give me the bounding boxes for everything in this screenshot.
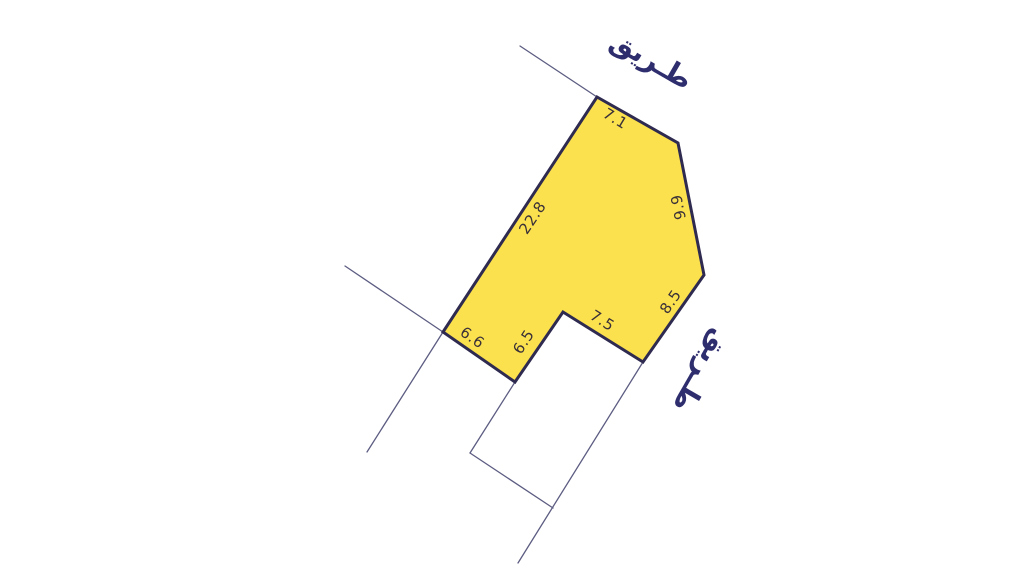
road-label-top: طـريق xyxy=(605,23,699,96)
road-edge-west-lower xyxy=(367,332,443,452)
road-edge-west-upper xyxy=(345,266,443,332)
neighbor-parcel-west-edge xyxy=(470,382,515,453)
road-edge-top xyxy=(520,46,597,97)
plot-map-stage: 7.19.922.88.57.56.56.6 طـريقطـريق xyxy=(0,0,1024,576)
neighbor-parcel-south-edge xyxy=(470,453,553,508)
road-label-east: طـريق xyxy=(666,325,739,419)
road-edge-east xyxy=(518,362,643,563)
plot-map-svg: 7.19.922.88.57.56.56.6 طـريقطـريق xyxy=(0,0,1024,576)
